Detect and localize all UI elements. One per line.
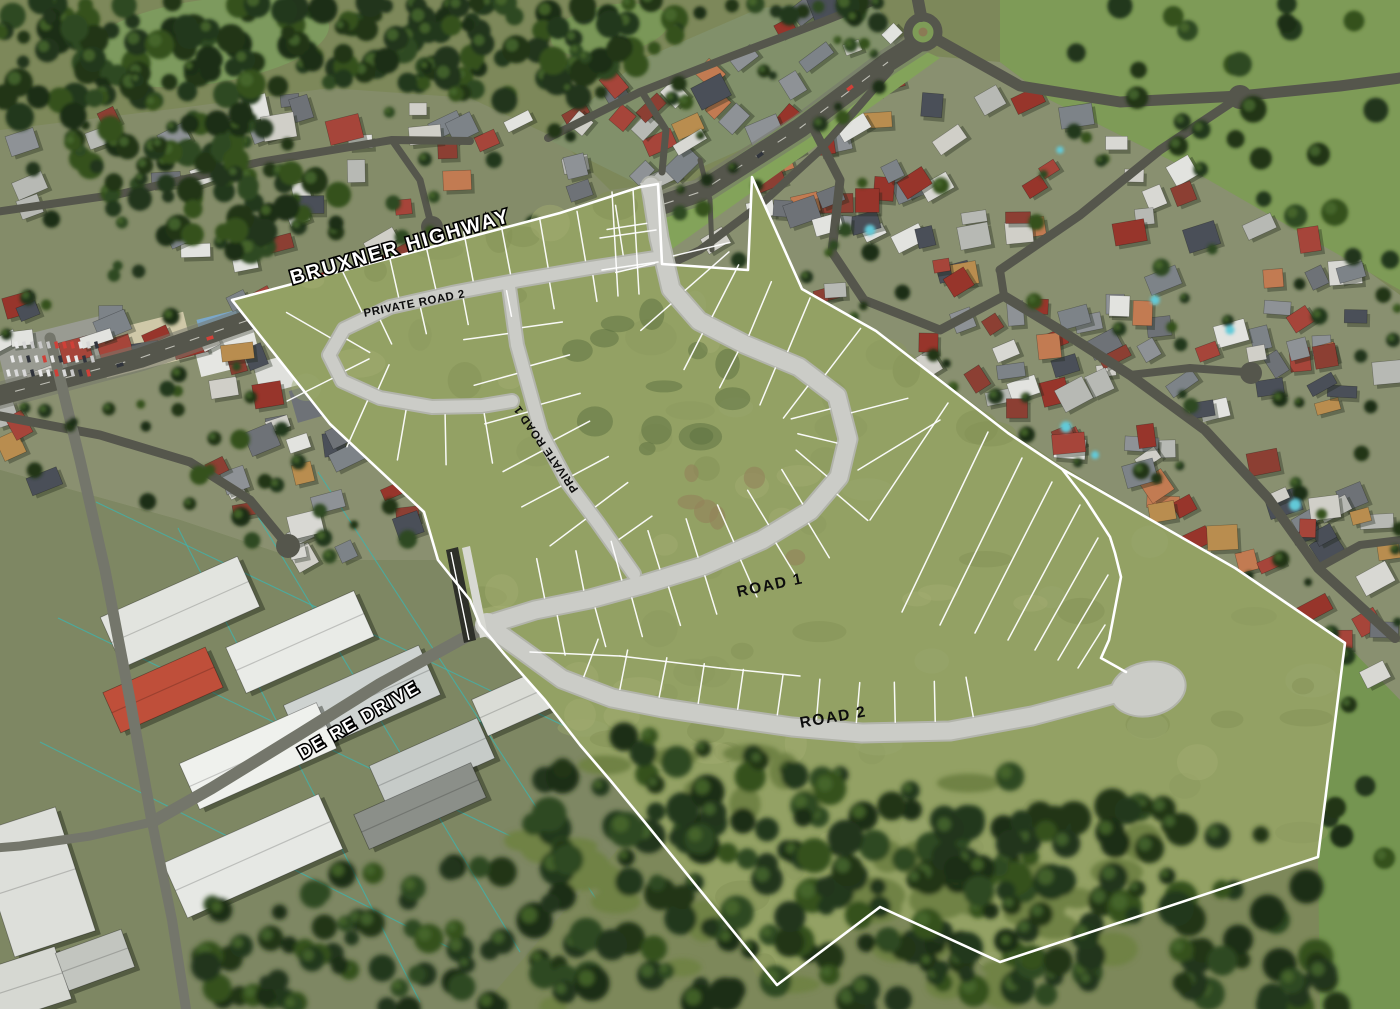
aerial-map[interactable]: BRUXNER HIGHWAY PRIVATE ROAD 2 PRIVATE R…: [0, 0, 1400, 1009]
map-canvas[interactable]: BRUXNER HIGHWAY PRIVATE ROAD 2 PRIVATE R…: [0, 0, 1400, 1009]
